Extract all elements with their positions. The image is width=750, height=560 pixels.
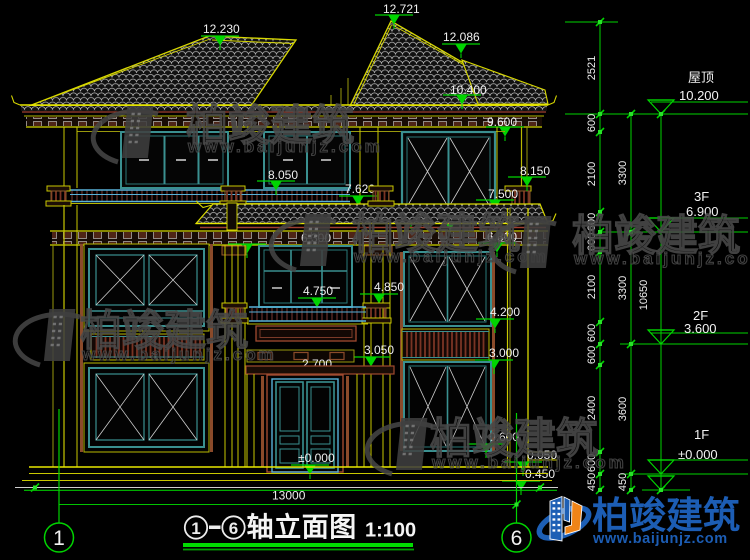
svg-text:3.050: 3.050	[364, 343, 394, 357]
svg-text:7.500: 7.500	[488, 187, 518, 201]
svg-text:600: 600	[586, 324, 598, 342]
svg-text:3.600: 3.600	[684, 321, 717, 336]
svg-text:www.baijunjz.com: www.baijunjz.com	[573, 249, 750, 268]
svg-text:www.baijunjz.com: www.baijunjz.com	[187, 137, 383, 156]
svg-text:www.baijunjz.com: www.baijunjz.com	[592, 531, 728, 547]
svg-text:10650: 10650	[638, 280, 650, 311]
svg-text:3.000: 3.000	[489, 346, 519, 360]
svg-text:www.baijunjz.com: www.baijunjz.com	[431, 453, 627, 472]
svg-text:8.150: 8.150	[520, 164, 550, 178]
svg-text:3600: 3600	[617, 397, 629, 421]
svg-text:6: 6	[511, 527, 523, 550]
svg-text:450: 450	[586, 473, 598, 491]
svg-text:600: 600	[586, 346, 598, 364]
svg-text:600: 600	[586, 114, 598, 132]
svg-text:±0.000: ±0.000	[678, 447, 718, 462]
svg-text:3300: 3300	[617, 276, 629, 300]
svg-text:2100: 2100	[586, 275, 598, 299]
svg-text:www.baijunjz.com: www.baijunjz.com	[81, 345, 277, 364]
svg-text:10.200: 10.200	[679, 88, 719, 103]
svg-text:450: 450	[617, 473, 629, 491]
svg-text:屋顶: 屋顶	[688, 70, 714, 85]
svg-text:柏竣建筑: 柏竣建筑	[592, 494, 740, 536]
svg-text:±0.000: ±0.000	[298, 451, 335, 465]
svg-text:3F: 3F	[694, 189, 709, 204]
svg-text:12.721: 12.721	[383, 2, 420, 16]
svg-text:4.750: 4.750	[303, 284, 333, 298]
svg-text:1F: 1F	[694, 427, 709, 442]
svg-text:轴立面图: 轴立面图	[247, 512, 357, 543]
svg-text:1: 1	[53, 527, 65, 550]
svg-text:6: 6	[229, 519, 238, 538]
svg-text:3300: 3300	[617, 161, 629, 185]
svg-text:www.baijunjz.com: www.baijunjz.com	[353, 247, 549, 266]
svg-text:1:100: 1:100	[365, 520, 416, 542]
svg-text:1: 1	[191, 519, 200, 538]
svg-text:2521: 2521	[586, 56, 598, 80]
svg-text:2100: 2100	[586, 162, 598, 186]
svg-text:4.850: 4.850	[374, 280, 404, 294]
svg-text:12.086: 12.086	[443, 30, 480, 44]
svg-text:12.230: 12.230	[203, 22, 240, 36]
svg-text:4.200: 4.200	[490, 305, 520, 319]
svg-text:8.050: 8.050	[268, 168, 298, 182]
